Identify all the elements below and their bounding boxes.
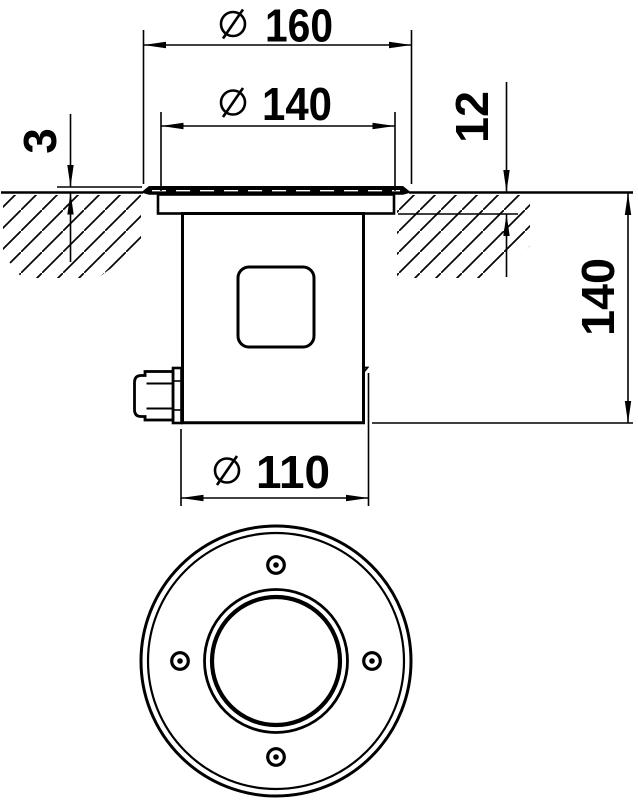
soil-hatch-right [397, 195, 530, 278]
dimension-arrow [181, 495, 204, 501]
dimension-arrow [161, 123, 184, 129]
fixing-screw-left [172, 653, 189, 670]
dimension-arrow [625, 401, 631, 423]
dimension-value-installation-depth: 140 [572, 258, 624, 336]
dimension-arrow [346, 495, 369, 501]
mounting-flange [158, 195, 394, 214]
front-view [141, 526, 411, 796]
technical-drawing-sheet: 160 140 3 12 140 [0, 0, 638, 800]
dimension-arrow [67, 165, 73, 187]
dimension-value-flange-depth: 12 [446, 91, 498, 143]
dimension-value-bezel-diameter: 160 [265, 0, 333, 52]
dimension-value-housing-diameter: 110 [256, 446, 330, 498]
fixing-screw-right [364, 653, 381, 670]
diameter-symbol-icon [221, 88, 245, 117]
cable-gland-dome-cap [135, 376, 147, 417]
dimension-arrow [503, 170, 509, 192]
luminaire-installation-drawing: 160 140 3 12 140 [0, 0, 638, 800]
cable-gland-hex-body [145, 372, 173, 421]
fixing-screw-bottom [268, 749, 285, 766]
dimension-arrow [625, 193, 631, 215]
cable-gland [135, 368, 182, 423]
diameter-symbol-icon [215, 456, 239, 485]
dimension-arrow [373, 123, 396, 129]
lamp-compartment [238, 267, 314, 347]
dimension-arrow [389, 42, 412, 48]
fixing-screw-top [268, 557, 285, 574]
dimension-flange-diameter: 140 [161, 78, 395, 191]
dimension-value-flange-diameter: 140 [262, 78, 332, 130]
dimension-arrow [144, 42, 167, 48]
dimension-value-protrusion: 3 [14, 128, 66, 154]
diameter-symbol-icon [221, 10, 245, 39]
